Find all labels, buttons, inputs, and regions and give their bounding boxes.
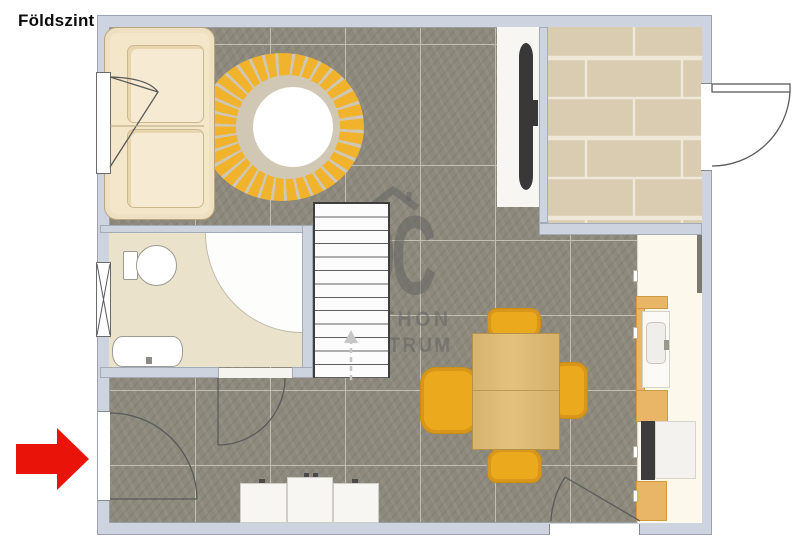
dining-chair (420, 367, 478, 434)
wall-segment (100, 367, 219, 378)
window (96, 72, 111, 174)
floor-plan-page: OC OTTHON CENTRUM (0, 0, 800, 549)
dining-table (472, 333, 560, 450)
tv-icon (519, 43, 533, 190)
cabinet-handle (259, 479, 265, 483)
oven (655, 421, 696, 479)
kitchen-counter (636, 390, 668, 422)
cabinet-handle (304, 473, 309, 477)
back-door-opening (549, 524, 640, 535)
cabinet-handle (633, 270, 638, 282)
cabinet-handle (633, 446, 638, 458)
entrance-door-opening (98, 411, 110, 501)
terrace-door-opening (701, 83, 712, 171)
sofa-cushion (127, 129, 204, 208)
sofa (104, 27, 215, 220)
toilet-bowl (136, 245, 177, 286)
page-title: Földszint (18, 11, 94, 31)
kitchen-sink-bowl (646, 322, 666, 364)
cabinet-handle (313, 473, 318, 477)
arrow-shaft (16, 444, 57, 474)
wall-segment (292, 367, 313, 378)
terrace-tile-floor (548, 27, 702, 223)
faucet-icon (146, 357, 152, 364)
rug-center-circle (253, 87, 333, 167)
terrace-door-leaf (712, 84, 790, 92)
wall-segment (539, 223, 702, 235)
cabinet-handle (352, 479, 358, 483)
wall-segment (539, 27, 548, 223)
window (96, 262, 111, 337)
faucet-icon (664, 340, 669, 350)
sofa-cushion (127, 45, 204, 123)
wall-segment (302, 225, 313, 378)
wall-segment (100, 225, 313, 233)
staircase (313, 202, 390, 378)
stair-treads (315, 204, 388, 378)
cabinet-handle (633, 490, 638, 502)
sideboard-cabinet (333, 483, 379, 523)
arrow-head (57, 428, 89, 490)
dining-chair (487, 448, 542, 483)
cabinet-handle (633, 327, 638, 339)
wall-shadow (697, 235, 702, 293)
sideboard-cabinet (287, 477, 333, 523)
terrace-door-swing (712, 92, 790, 166)
kitchen-counter (636, 481, 667, 521)
sideboard-cabinet (240, 483, 287, 523)
entrance-arrow-icon (16, 428, 89, 490)
stove (641, 421, 655, 480)
table-seam (473, 390, 559, 391)
bathroom-door-opening (219, 368, 292, 378)
